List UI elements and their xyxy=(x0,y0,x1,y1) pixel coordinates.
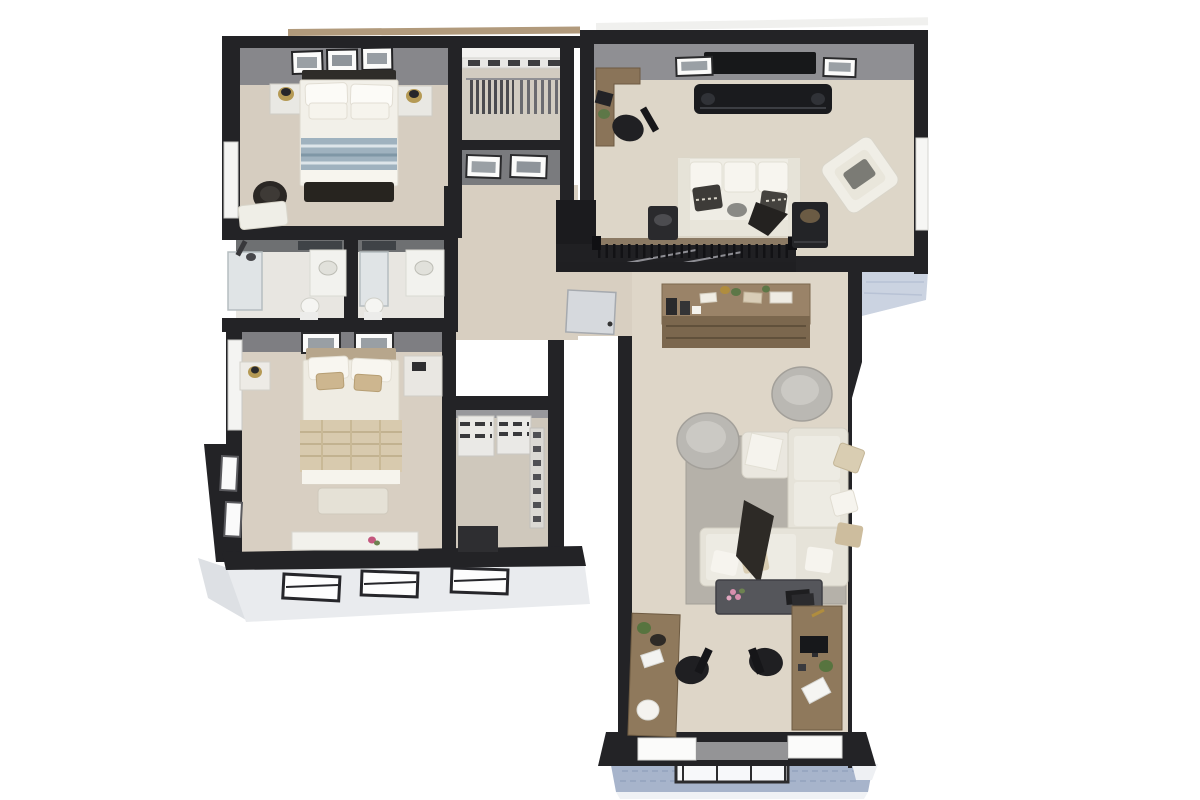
bedroom2-accent-pillow-1 xyxy=(316,372,344,390)
bonus-wall-tv xyxy=(704,52,816,74)
console-decor-plant-1 xyxy=(731,288,741,296)
family-pillow-6 xyxy=(804,546,833,573)
family-beanbag-1-inner xyxy=(781,375,819,405)
bedroom2-foot-bench xyxy=(318,488,388,514)
floor-plan-render xyxy=(0,0,1200,800)
family-console-front xyxy=(662,316,810,348)
bedroom1-frame-2-art xyxy=(332,55,352,66)
entry-door-leaf xyxy=(566,290,616,334)
bath1-sink xyxy=(319,261,337,275)
ext-roofline-top-left xyxy=(288,26,580,36)
bedroom2-lamp-left-shade xyxy=(251,367,259,374)
bonus-sofa-cushion-3 xyxy=(758,162,788,192)
bath1-showerhead xyxy=(246,253,256,261)
desk-left-bowl xyxy=(650,634,666,646)
entry-door-handle xyxy=(608,322,613,327)
console-decor-white-box xyxy=(692,306,701,314)
bedroom2-flower-leaf xyxy=(374,541,380,546)
bedroom2-dresser-decor xyxy=(412,362,426,371)
desk-right-monitor xyxy=(800,636,828,653)
bonus-pillow-patterned-1 xyxy=(692,184,723,212)
bonus-side-table-left-bowl xyxy=(654,214,672,226)
wall-closet1-east xyxy=(560,36,574,210)
closet2-dark-unit xyxy=(458,526,498,552)
bonus-speaker-right xyxy=(811,93,825,105)
wall-bedroom2-east xyxy=(442,332,456,564)
bath1-toilet-bowl xyxy=(301,298,319,314)
floorplan-screenshot xyxy=(0,0,1200,800)
window-side-lower-2 xyxy=(224,502,242,537)
ext-white-bottom-edge xyxy=(616,792,868,799)
bonus-sofa-arm-left xyxy=(678,158,690,236)
console-decor-books-1 xyxy=(700,293,717,303)
console-decor-gold xyxy=(720,286,730,294)
bedroom1-pillow-4 xyxy=(351,103,389,119)
wall-closet2-east xyxy=(548,340,564,564)
wall-left-top xyxy=(222,36,580,48)
stair-newel-left xyxy=(592,236,601,250)
bedroom2-sheet-fold xyxy=(302,470,400,484)
bath2-toilet-tank xyxy=(364,312,382,320)
bath2-toilet-bowl xyxy=(365,298,383,314)
bonus-sofa-cushion-2 xyxy=(724,162,756,192)
bath2-sink xyxy=(415,261,433,275)
family-window-seat-right xyxy=(788,736,842,758)
ext-roofline-top-right xyxy=(596,17,928,31)
console-decor-tray xyxy=(770,292,792,303)
wall-bonus-west xyxy=(580,30,594,214)
stair-railing-rail xyxy=(594,238,796,245)
desk-right-plant xyxy=(819,660,833,672)
bedroom2-accent-pillow-2 xyxy=(354,374,382,392)
console-decor-dark-1 xyxy=(666,298,677,315)
window-bonus-east xyxy=(916,138,928,230)
console-decor-dark-2 xyxy=(680,301,690,315)
wall-bath-south xyxy=(222,318,458,332)
family-ottoman-blanket xyxy=(745,433,783,471)
bath1-shower-glass xyxy=(228,252,262,310)
console-decor-books-2 xyxy=(743,292,762,303)
bedroom1-pillow-1 xyxy=(305,83,348,106)
family-pillow-3 xyxy=(834,522,863,548)
bonus-desk-plant xyxy=(598,109,610,119)
coffee-table-books-2 xyxy=(792,593,815,607)
family-window-center-band xyxy=(696,742,788,760)
coffee-table-flower-1 xyxy=(730,589,736,595)
hall-frame-2-art xyxy=(516,161,540,173)
bedroom2-frame-2-art xyxy=(361,338,387,348)
bonus-side-table-right-bowl xyxy=(800,209,820,223)
hall-frame-1-art xyxy=(471,161,495,173)
wall-bonus-south-right xyxy=(794,256,928,272)
wall-closet1-south xyxy=(448,140,574,150)
coffee-table-flower-2 xyxy=(735,594,741,600)
desk-right-small-item xyxy=(798,664,806,671)
wall-hall-west xyxy=(444,186,458,332)
bedroom1-foot-bench xyxy=(304,182,394,202)
bedroom1-frame-3-art xyxy=(367,53,387,64)
console-decor-plant-2 xyxy=(762,286,770,293)
wall-family-east xyxy=(848,272,862,768)
bedroom1-lamp-right-shade xyxy=(409,90,419,98)
bedroom1-frame-1-art xyxy=(297,57,317,68)
bedroom1-round-chair-inner xyxy=(260,186,280,202)
desk-right-monitor-stand xyxy=(812,653,818,657)
bedroom1-lamp-left-shade xyxy=(281,88,291,96)
bedroom1-chaise xyxy=(238,201,288,230)
coffee-table-flower-3 xyxy=(727,596,732,601)
family-beanbag-2-inner xyxy=(686,421,726,453)
bedroom1-sheet-fold xyxy=(301,170,397,182)
family-sofa-right-cushion-1 xyxy=(794,436,840,480)
bonus-speaker-left xyxy=(701,93,715,105)
bath2-mirror xyxy=(362,241,396,250)
coffee-table-leaf xyxy=(739,589,745,594)
ext-right-bottom-sliver xyxy=(852,764,878,780)
window-side-lower-1 xyxy=(220,456,238,491)
desk-left-plant xyxy=(637,622,651,634)
bedroom1-pillow-3 xyxy=(309,103,347,119)
desk-left-sphere-lamp xyxy=(637,700,659,720)
bath1-toilet-tank xyxy=(300,312,318,320)
wall-under-railing xyxy=(556,262,796,272)
bonus-frame-left-art xyxy=(681,61,707,71)
bonus-seat-decor xyxy=(727,203,747,217)
bedroom2-long-dresser xyxy=(292,532,418,550)
window-bedroom1-west xyxy=(224,142,238,218)
wall-closet2-north xyxy=(442,396,550,410)
bedroom2-frame-1-art xyxy=(308,338,334,348)
wall-bonus-top xyxy=(580,30,928,44)
bath1-mirror xyxy=(298,241,342,250)
bonus-frame-right-art xyxy=(829,62,851,72)
family-window-seat-left xyxy=(638,738,696,760)
